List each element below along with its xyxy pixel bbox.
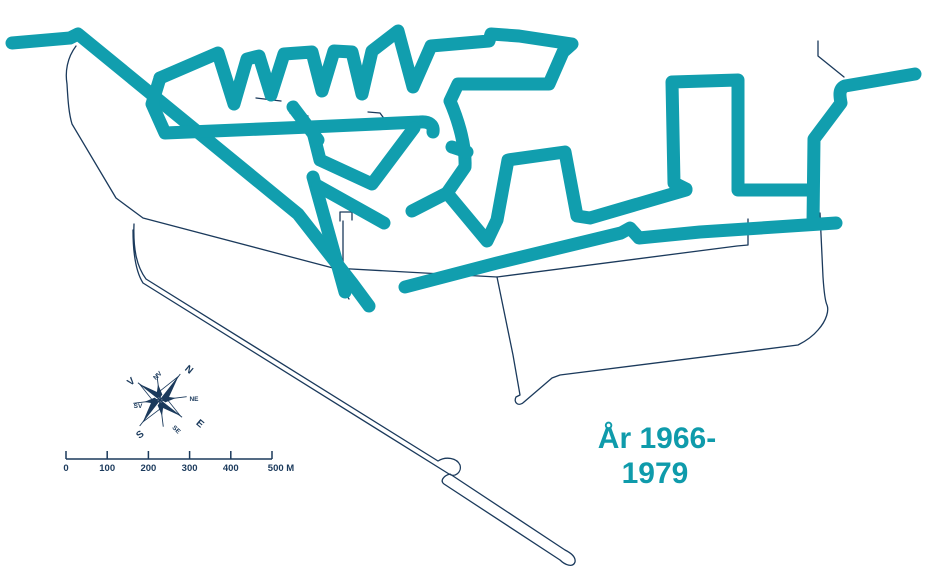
scale-label-100: 100 xyxy=(99,463,115,474)
map-title: År 1966- 1979 xyxy=(598,422,716,490)
compass-label-ne: NE xyxy=(189,396,199,403)
compass-label-e: E xyxy=(194,418,206,431)
network-south-trunk xyxy=(405,223,836,287)
breakwater-spur xyxy=(442,474,575,565)
map-title-line1: År 1966- xyxy=(598,422,716,455)
scale-label-200: 200 xyxy=(140,463,156,474)
scale-label-400: 400 xyxy=(223,463,239,474)
map-title-line2: 1979 xyxy=(622,457,689,490)
compass-label-n: N xyxy=(182,364,195,377)
breakwater-pier xyxy=(133,224,460,475)
network-northeast-arm xyxy=(813,74,915,224)
map-figure: N NE E SE S SV V NV 0 100 200 300 400 50… xyxy=(0,0,928,569)
network-pentagon xyxy=(312,128,414,184)
compass-rose-icon: N NE E SE S SV V NV xyxy=(118,357,206,443)
pipe-network-lines xyxy=(12,31,915,306)
compass-label-sv: SV xyxy=(134,403,143,410)
network-claw-nub xyxy=(452,147,467,152)
scale-bar-line xyxy=(66,451,272,459)
scale-label-0: 0 xyxy=(63,463,68,474)
compass-label-v: V xyxy=(125,376,137,389)
compass-label-nv: NV xyxy=(152,370,164,382)
compass-label-se: SE xyxy=(171,424,183,436)
scale-label-300: 300 xyxy=(182,463,198,474)
network-claw-branch xyxy=(412,193,447,211)
compass-label-s: S xyxy=(134,429,146,442)
compass-diagonal-lines xyxy=(133,373,186,426)
north-inlet-line xyxy=(818,41,844,77)
scale-bar: 0 100 200 300 400 500 M xyxy=(63,451,294,474)
scale-label-500m: 500 M xyxy=(268,463,294,474)
map-canvas: N NE E SE S SV V NV 0 100 200 300 400 50… xyxy=(0,0,928,569)
network-tall-rectangle xyxy=(672,80,812,190)
